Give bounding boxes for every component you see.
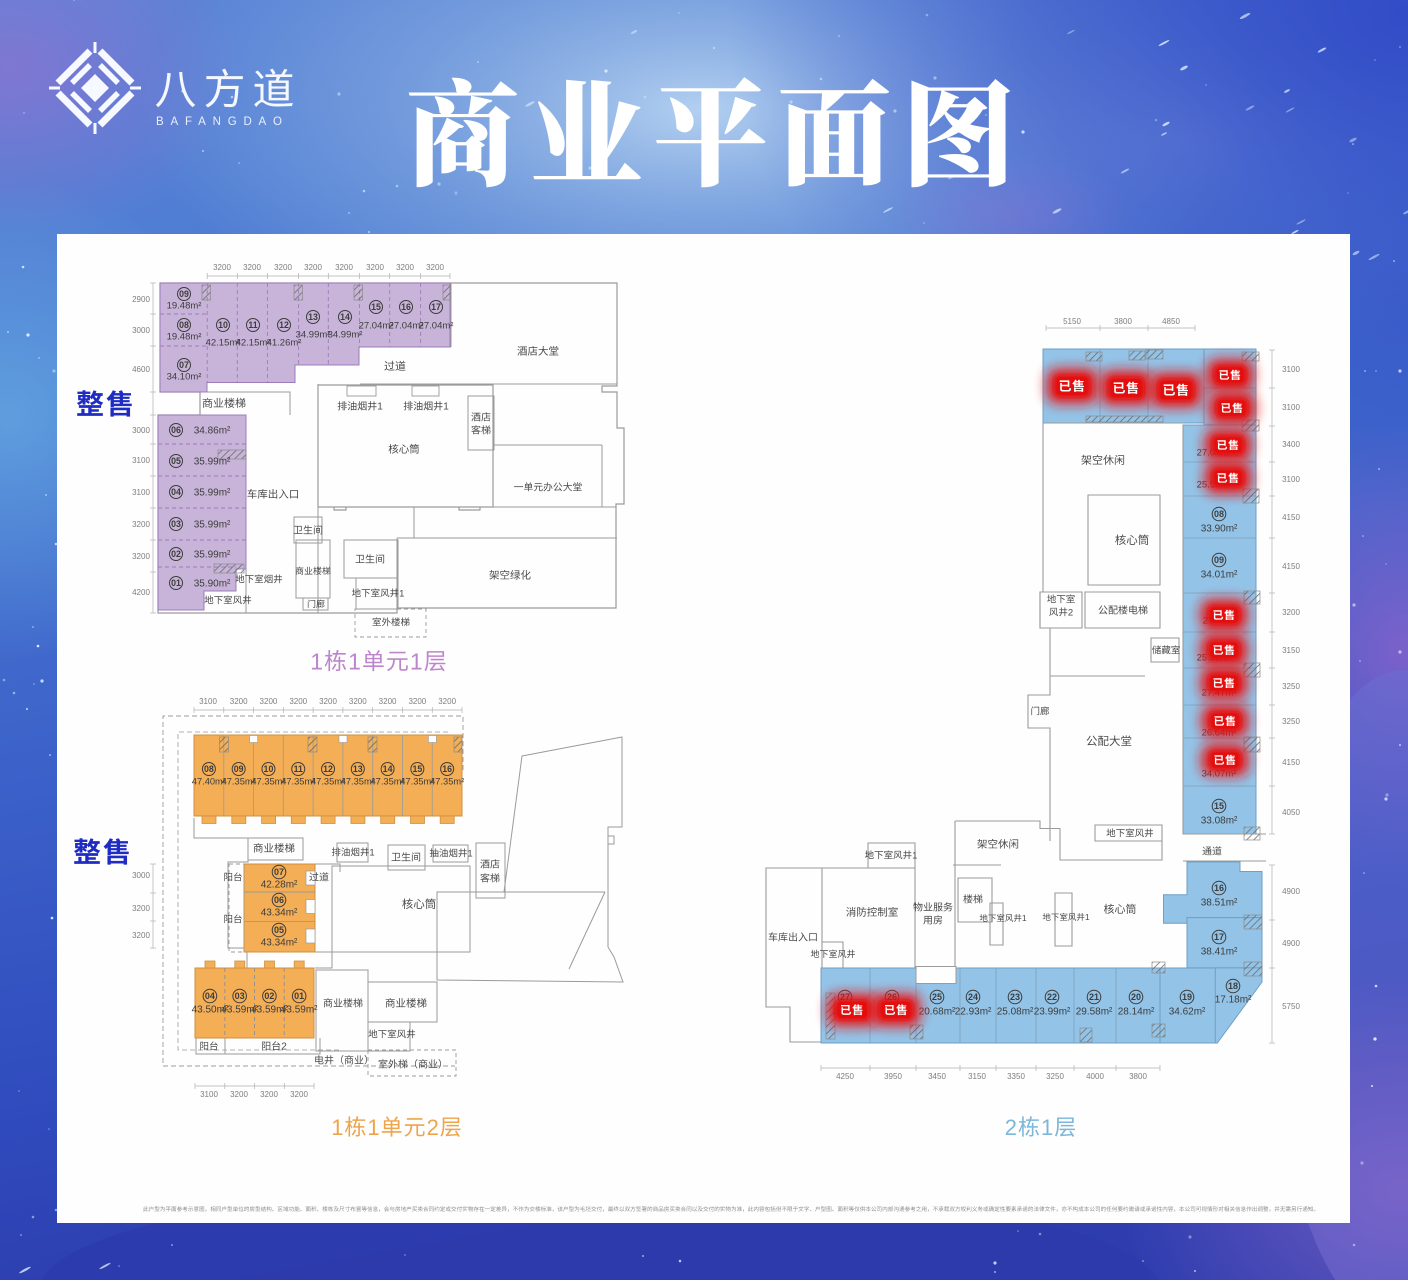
svg-text:3100: 3100 [132, 488, 150, 497]
svg-text:3100: 3100 [1282, 365, 1300, 374]
svg-text:05: 05 [171, 456, 181, 466]
svg-text:3200: 3200 [438, 697, 456, 706]
svg-text:19: 19 [1182, 992, 1192, 1002]
svg-text:1: 1 [348, 648, 361, 674]
svg-text:11: 11 [294, 764, 303, 774]
svg-text:1: 1 [443, 402, 449, 413]
svg-text:33.08m²: 33.08m² [1201, 816, 1238, 827]
svg-text:1: 1 [399, 588, 404, 599]
svg-text:2: 2 [427, 1115, 439, 1140]
svg-text:3200: 3200 [132, 931, 150, 940]
svg-text:1: 1 [369, 847, 374, 858]
svg-text:1: 1 [1085, 912, 1090, 922]
svg-text:5750: 5750 [1282, 1002, 1300, 1011]
svg-text:34.62m²: 34.62m² [1169, 1007, 1206, 1018]
svg-text:3950: 3950 [884, 1072, 902, 1081]
svg-text:3200: 3200 [335, 263, 353, 272]
svg-text:3200: 3200 [213, 263, 231, 272]
svg-text:43.34m²: 43.34m² [261, 908, 298, 919]
svg-text:33.90m²: 33.90m² [1201, 524, 1238, 535]
svg-text:3200: 3200 [132, 904, 150, 913]
svg-text:09: 09 [1214, 555, 1224, 565]
svg-text:12: 12 [323, 764, 333, 774]
svg-text:20.68m²: 20.68m² [919, 1007, 956, 1018]
svg-text:35.90m²: 35.90m² [194, 579, 231, 590]
svg-text:3200: 3200 [132, 552, 150, 561]
svg-text:35.99m²: 35.99m² [194, 550, 231, 561]
svg-text:22.93m²: 22.93m² [955, 1007, 992, 1018]
svg-text:06: 06 [171, 425, 181, 435]
svg-text:08: 08 [204, 764, 214, 774]
svg-text:09: 09 [179, 289, 189, 299]
svg-text:35.99m²: 35.99m² [194, 520, 231, 531]
svg-text:4050: 4050 [1282, 808, 1300, 817]
svg-text:4000: 4000 [1086, 1072, 1104, 1081]
svg-text:3200: 3200 [274, 263, 292, 272]
svg-text:16: 16 [401, 302, 411, 312]
svg-text:14: 14 [383, 764, 393, 774]
svg-text:1: 1 [410, 648, 423, 674]
svg-text:3450: 3450 [928, 1072, 946, 1081]
svg-text:17: 17 [431, 302, 441, 312]
svg-text:07: 07 [274, 867, 284, 877]
svg-text:3200: 3200 [379, 697, 397, 706]
svg-text:3200: 3200 [349, 697, 367, 706]
svg-text:38.41m²: 38.41m² [1201, 947, 1238, 958]
svg-text:1: 1 [377, 402, 383, 413]
svg-text:05: 05 [274, 925, 284, 935]
svg-text:4900: 4900 [1282, 887, 1300, 896]
svg-text:15: 15 [371, 302, 381, 312]
svg-text:3100: 3100 [132, 456, 150, 465]
svg-text:3150: 3150 [1282, 646, 1300, 655]
svg-text:1: 1 [310, 648, 323, 674]
svg-text:04: 04 [205, 991, 215, 1001]
svg-text:13: 13 [353, 764, 363, 774]
svg-text:3200: 3200 [396, 263, 414, 272]
svg-text:34.86m²: 34.86m² [194, 426, 231, 437]
svg-text:3250: 3250 [1046, 1072, 1064, 1081]
svg-text:3200: 3200 [290, 1090, 308, 1099]
svg-text:12: 12 [279, 320, 289, 330]
svg-text:4150: 4150 [1282, 758, 1300, 767]
svg-text:4250: 4250 [836, 1072, 854, 1081]
svg-text:1: 1 [912, 850, 917, 861]
svg-text:18: 18 [1228, 981, 1238, 991]
svg-text:28.14m²: 28.14m² [1118, 1007, 1155, 1018]
svg-text:35.99m²: 35.99m² [194, 488, 231, 499]
svg-text:1: 1 [1022, 913, 1027, 923]
svg-text:3000: 3000 [132, 326, 150, 335]
svg-text:16: 16 [442, 764, 452, 774]
svg-text:14: 14 [340, 312, 350, 322]
svg-text:3250: 3250 [1282, 717, 1300, 726]
svg-text:15: 15 [1214, 801, 1224, 811]
svg-text:42.28m²: 42.28m² [261, 880, 298, 891]
svg-text:3100: 3100 [199, 697, 217, 706]
svg-text:5150: 5150 [1063, 317, 1081, 326]
svg-text:27.04m²: 27.04m² [419, 320, 454, 331]
svg-text:23: 23 [1010, 992, 1020, 1002]
svg-text:02: 02 [171, 549, 181, 559]
svg-text:10: 10 [218, 320, 228, 330]
svg-text:29.58m²: 29.58m² [1076, 1007, 1113, 1018]
svg-text:17: 17 [1214, 932, 1224, 942]
svg-text:4200: 4200 [132, 588, 150, 597]
svg-text:4600: 4600 [132, 365, 150, 374]
svg-text:3200: 3200 [408, 697, 426, 706]
svg-text:02: 02 [264, 991, 274, 1001]
svg-text:3100: 3100 [1282, 403, 1300, 412]
svg-text:01: 01 [171, 578, 181, 588]
svg-text:3800: 3800 [1114, 317, 1132, 326]
svg-text:42.15m²: 42.15m² [236, 337, 271, 348]
svg-text:3200: 3200 [260, 697, 278, 706]
svg-text:03: 03 [235, 991, 245, 1001]
svg-text:3200: 3200 [426, 263, 444, 272]
svg-text:3250: 3250 [1282, 682, 1300, 691]
svg-text:16: 16 [1214, 883, 1224, 893]
svg-text:25.08m²: 25.08m² [997, 1007, 1034, 1018]
svg-text:2900: 2900 [132, 295, 150, 304]
svg-text:3200: 3200 [319, 697, 337, 706]
svg-text:34.01m²: 34.01m² [1201, 570, 1238, 581]
svg-text:43.34m²: 43.34m² [261, 938, 298, 949]
svg-text:04: 04 [171, 487, 181, 497]
svg-text:01: 01 [294, 991, 304, 1001]
svg-text:08: 08 [1214, 509, 1224, 519]
svg-text:3200: 3200 [304, 263, 322, 272]
svg-text:23.99m²: 23.99m² [1034, 1007, 1071, 1018]
svg-text:13: 13 [308, 312, 318, 322]
svg-text:19.48m²: 19.48m² [167, 300, 202, 311]
svg-text:38.51m²: 38.51m² [1201, 898, 1238, 909]
svg-text:1: 1 [1041, 1115, 1053, 1140]
svg-text:4850: 4850 [1162, 317, 1180, 326]
svg-text:2: 2 [1068, 607, 1073, 618]
svg-text:4900: 4900 [1282, 939, 1300, 948]
svg-text:3000: 3000 [132, 871, 150, 880]
svg-text:3200: 3200 [230, 697, 248, 706]
svg-text:19.48m²: 19.48m² [167, 331, 202, 342]
svg-text:34.99m²: 34.99m² [296, 329, 331, 340]
svg-text:2: 2 [281, 1042, 287, 1053]
svg-text:3100: 3100 [200, 1090, 218, 1099]
svg-text:3800: 3800 [1129, 1072, 1147, 1081]
svg-text:1: 1 [331, 1115, 343, 1140]
svg-text:25: 25 [932, 992, 942, 1002]
svg-text:3100: 3100 [1282, 475, 1300, 484]
svg-text:3000: 3000 [132, 426, 150, 435]
svg-text:06: 06 [274, 895, 284, 905]
svg-text:24: 24 [968, 992, 978, 1002]
svg-text:07: 07 [179, 360, 189, 370]
svg-text:47.35m²: 47.35m² [430, 776, 464, 786]
svg-text:3200: 3200 [230, 1090, 248, 1099]
svg-text:35.99m²: 35.99m² [194, 457, 231, 468]
svg-text:1: 1 [467, 848, 472, 859]
svg-text:3200: 3200 [243, 263, 261, 272]
svg-text:11: 11 [248, 320, 257, 330]
svg-text:09: 09 [234, 764, 244, 774]
svg-text:34.99m²: 34.99m² [328, 329, 363, 340]
svg-text:22: 22 [1047, 992, 1057, 1002]
svg-text:17.18m²: 17.18m² [1215, 995, 1252, 1006]
svg-text:08: 08 [179, 320, 189, 330]
svg-text:15: 15 [412, 764, 422, 774]
svg-text:3200: 3200 [1282, 608, 1300, 617]
svg-text:3400: 3400 [1282, 440, 1300, 449]
svg-text:4150: 4150 [1282, 562, 1300, 571]
svg-text:43.59m²: 43.59m² [281, 1005, 318, 1016]
svg-text:3150: 3150 [968, 1072, 986, 1081]
svg-text:BAFANGDAO: BAFANGDAO [156, 116, 289, 128]
svg-text:20: 20 [1131, 992, 1141, 1002]
svg-text:3200: 3200 [132, 520, 150, 529]
svg-text:3200: 3200 [366, 263, 384, 272]
svg-text:3350: 3350 [1007, 1072, 1025, 1081]
svg-text:21: 21 [1089, 992, 1099, 1002]
svg-text:10: 10 [264, 764, 274, 774]
svg-text:4150: 4150 [1282, 513, 1300, 522]
svg-text:2: 2 [1005, 1115, 1017, 1140]
svg-text:1: 1 [367, 1115, 379, 1140]
svg-text:34.10m²: 34.10m² [167, 371, 202, 382]
svg-text:03: 03 [171, 519, 181, 529]
svg-text:3200: 3200 [289, 697, 307, 706]
svg-text:3200: 3200 [260, 1090, 278, 1099]
